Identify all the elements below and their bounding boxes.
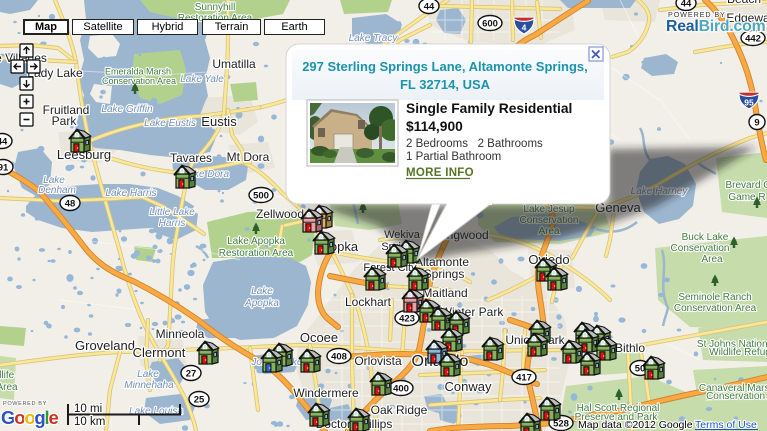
svg-text:Restoration Area: Restoration Area (219, 248, 294, 259)
svg-text:Park: Park (52, 114, 78, 128)
svg-text:Lake Eustis: Lake Eustis (144, 118, 196, 129)
svg-text:27: 27 (186, 368, 197, 379)
svg-text:Ocoee: Ocoee (300, 330, 338, 345)
svg-text:48: 48 (65, 198, 76, 209)
svg-text:Groveland: Groveland (75, 338, 135, 353)
svg-text:Tavares: Tavares (170, 151, 212, 165)
svg-text:10 mi: 10 mi (74, 403, 102, 415)
svg-text:Seminole Ranch: Seminole Ranch (678, 292, 751, 303)
svg-text:Harris: Harris (159, 218, 186, 229)
svg-text:Wildlife Refug: Wildlife Refug (709, 347, 767, 358)
svg-text:Lockhart: Lockhart (345, 295, 392, 309)
svg-text:Buck Lake: Buck Lake (682, 232, 729, 243)
svg-text:44: 44 (0, 136, 8, 147)
svg-text:Lake Griffin: Lake Griffin (101, 104, 153, 115)
svg-text:Lake Apopka: Lake Apopka (227, 236, 285, 247)
svg-text:2 Bedrooms 2 Bathrooms: 2 Bedrooms 2 Bathrooms (406, 138, 543, 150)
svg-text:423: 423 (399, 313, 415, 324)
svg-text:Lake Yale: Lake Yale (180, 74, 224, 85)
svg-text:Eustis: Eustis (201, 114, 237, 129)
svg-text:Denham: Denham (38, 185, 76, 196)
svg-text:Lake: Lake (137, 369, 159, 380)
svg-text:442: 442 (745, 33, 761, 44)
svg-text:25: 25 (194, 394, 205, 405)
svg-text:Lake Tracy: Lake Tracy (349, 33, 399, 44)
svg-text:Conservation Area: Conservation Area (102, 76, 176, 86)
svg-text:Conservation A: Conservation A (706, 391, 767, 402)
svg-text:Zellwood: Zellwood (256, 207, 304, 221)
svg-text:Minnehaha: Minnehaha (124, 380, 174, 391)
svg-text:1 Partial Bathroom: 1 Partial Bathroom (406, 151, 501, 163)
svg-text:Springs: Springs (424, 267, 465, 281)
svg-text:dlife: dlife (0, 370, 15, 381)
svg-text:417: 417 (516, 372, 532, 383)
svg-text:Apopka: Apopka (244, 298, 279, 309)
svg-text:Mt Dora: Mt Dora (227, 150, 270, 164)
svg-text:$114,900: $114,900 (406, 119, 463, 134)
svg-text:Clermont: Clermont (133, 345, 186, 360)
svg-text:95: 95 (744, 98, 754, 108)
svg-text:Beach: Beach (727, 0, 761, 6)
svg-text:Orlovista: Orlovista (354, 354, 402, 368)
svg-text:600: 600 (482, 18, 498, 29)
svg-text:Map data ©2012 Google -: Map data ©2012 Google - (578, 419, 699, 431)
svg-text:Area: Area (0, 382, 18, 393)
svg-text:Umatilla: Umatilla (212, 57, 256, 71)
svg-text:Area: Area (701, 254, 723, 265)
svg-text:Brevard C: Brevard C (725, 180, 767, 191)
svg-text:RealBird.com: RealBird.com (666, 18, 766, 35)
svg-text:Game R: Game R (728, 192, 765, 203)
svg-text:10 km: 10 km (74, 416, 105, 428)
svg-text:Lake: Lake (251, 286, 273, 297)
svg-text:Single Family Residential: Single Family Residential (406, 101, 572, 116)
svg-text:9: 9 (754, 117, 759, 128)
svg-text:297 Sterling Springs Lane, Alt: 297 Sterling Springs Lane, Altamonte Spr… (302, 59, 588, 74)
svg-text:44: 44 (424, 1, 435, 12)
svg-text:400: 400 (393, 383, 409, 394)
svg-text:Little Lake: Little Lake (149, 207, 195, 218)
svg-text:500: 500 (253, 190, 269, 201)
svg-text:Emeralda Marsh: Emeralda Marsh (105, 67, 171, 77)
svg-text:Sunnyhill: Sunnyhill (195, 2, 236, 13)
svg-text:Conservation: Conservation (671, 243, 730, 254)
svg-text:Minneola: Minneola (156, 327, 205, 341)
svg-text:Maitland: Maitland (422, 286, 467, 300)
svg-text:Lake Harris: Lake Harris (105, 188, 156, 199)
svg-text:Windermere: Windermere (293, 386, 359, 400)
svg-text:MORE INFO: MORE INFO (406, 167, 474, 179)
svg-text:44: 44 (681, 0, 692, 9)
svg-text:Google: Google (1, 407, 58, 428)
svg-text:Conservation Area: Conservation Area (674, 303, 757, 314)
svg-text:Conway: Conway (445, 379, 492, 394)
svg-text:FL 32714, USA: FL 32714, USA (400, 77, 491, 92)
svg-text:Bithlo: Bithlo (615, 341, 645, 355)
svg-text:91: 91 (0, 162, 9, 173)
svg-text:Oak Ridge: Oak Ridge (371, 403, 428, 417)
svg-text:408: 408 (331, 351, 347, 362)
svg-text:4: 4 (522, 23, 527, 33)
